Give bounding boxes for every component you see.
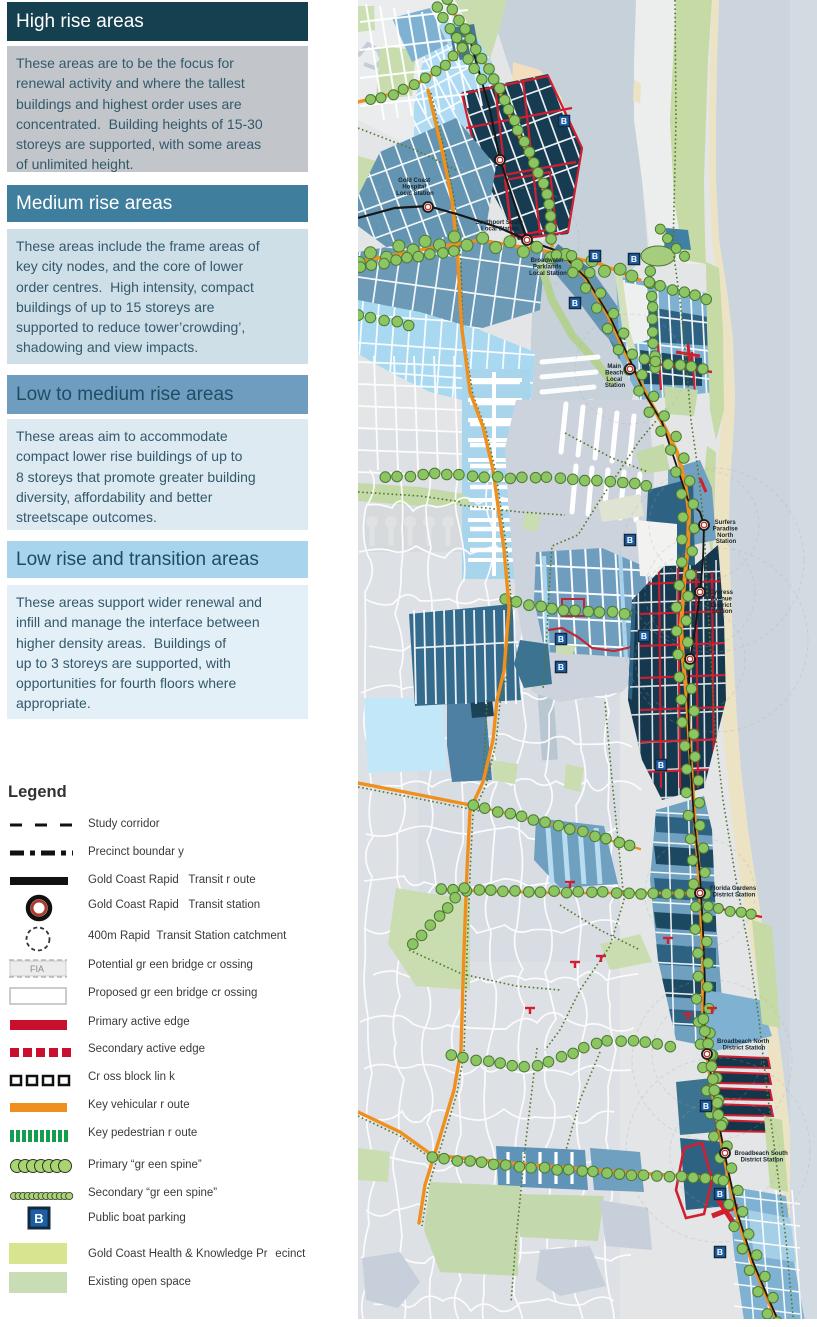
svg-text:FIA: FIA	[30, 964, 44, 974]
svg-text:Cypress Avenue District Statio: Cypress Avenue District Station	[709, 590, 734, 615]
svg-text:Southport South Local Station: Southport South Local Station	[476, 220, 525, 232]
svg-text:B: B	[34, 1211, 43, 1226]
svg-text:B: B	[572, 298, 578, 308]
svg-text:B: B	[631, 254, 637, 264]
svg-text:B: B	[558, 662, 564, 672]
svg-text:Broadwater Parklands Local Sta: Broadwater Parklands Local Station	[529, 258, 567, 277]
svg-text:Broadbeach South District Stat: Broadbeach South District Station	[734, 1151, 789, 1163]
svg-text:B: B	[717, 1189, 723, 1199]
svg-text:B: B	[558, 634, 564, 644]
svg-text:Broadbeach North District Stat: Broadbeach North District Station	[717, 1039, 771, 1051]
svg-text:B: B	[641, 631, 647, 641]
svg-text:Florida Gardens District Stati: Florida Gardens District Station	[710, 886, 758, 898]
svg-text:B: B	[658, 760, 664, 770]
svg-text:B: B	[561, 116, 567, 126]
svg-text:Main Beach Local Station: Main Beach Local Station	[605, 364, 626, 389]
svg-text:B: B	[703, 1101, 709, 1111]
svg-text:B: B	[627, 535, 633, 545]
svg-text:B: B	[717, 1247, 723, 1257]
svg-text:B: B	[592, 251, 598, 261]
